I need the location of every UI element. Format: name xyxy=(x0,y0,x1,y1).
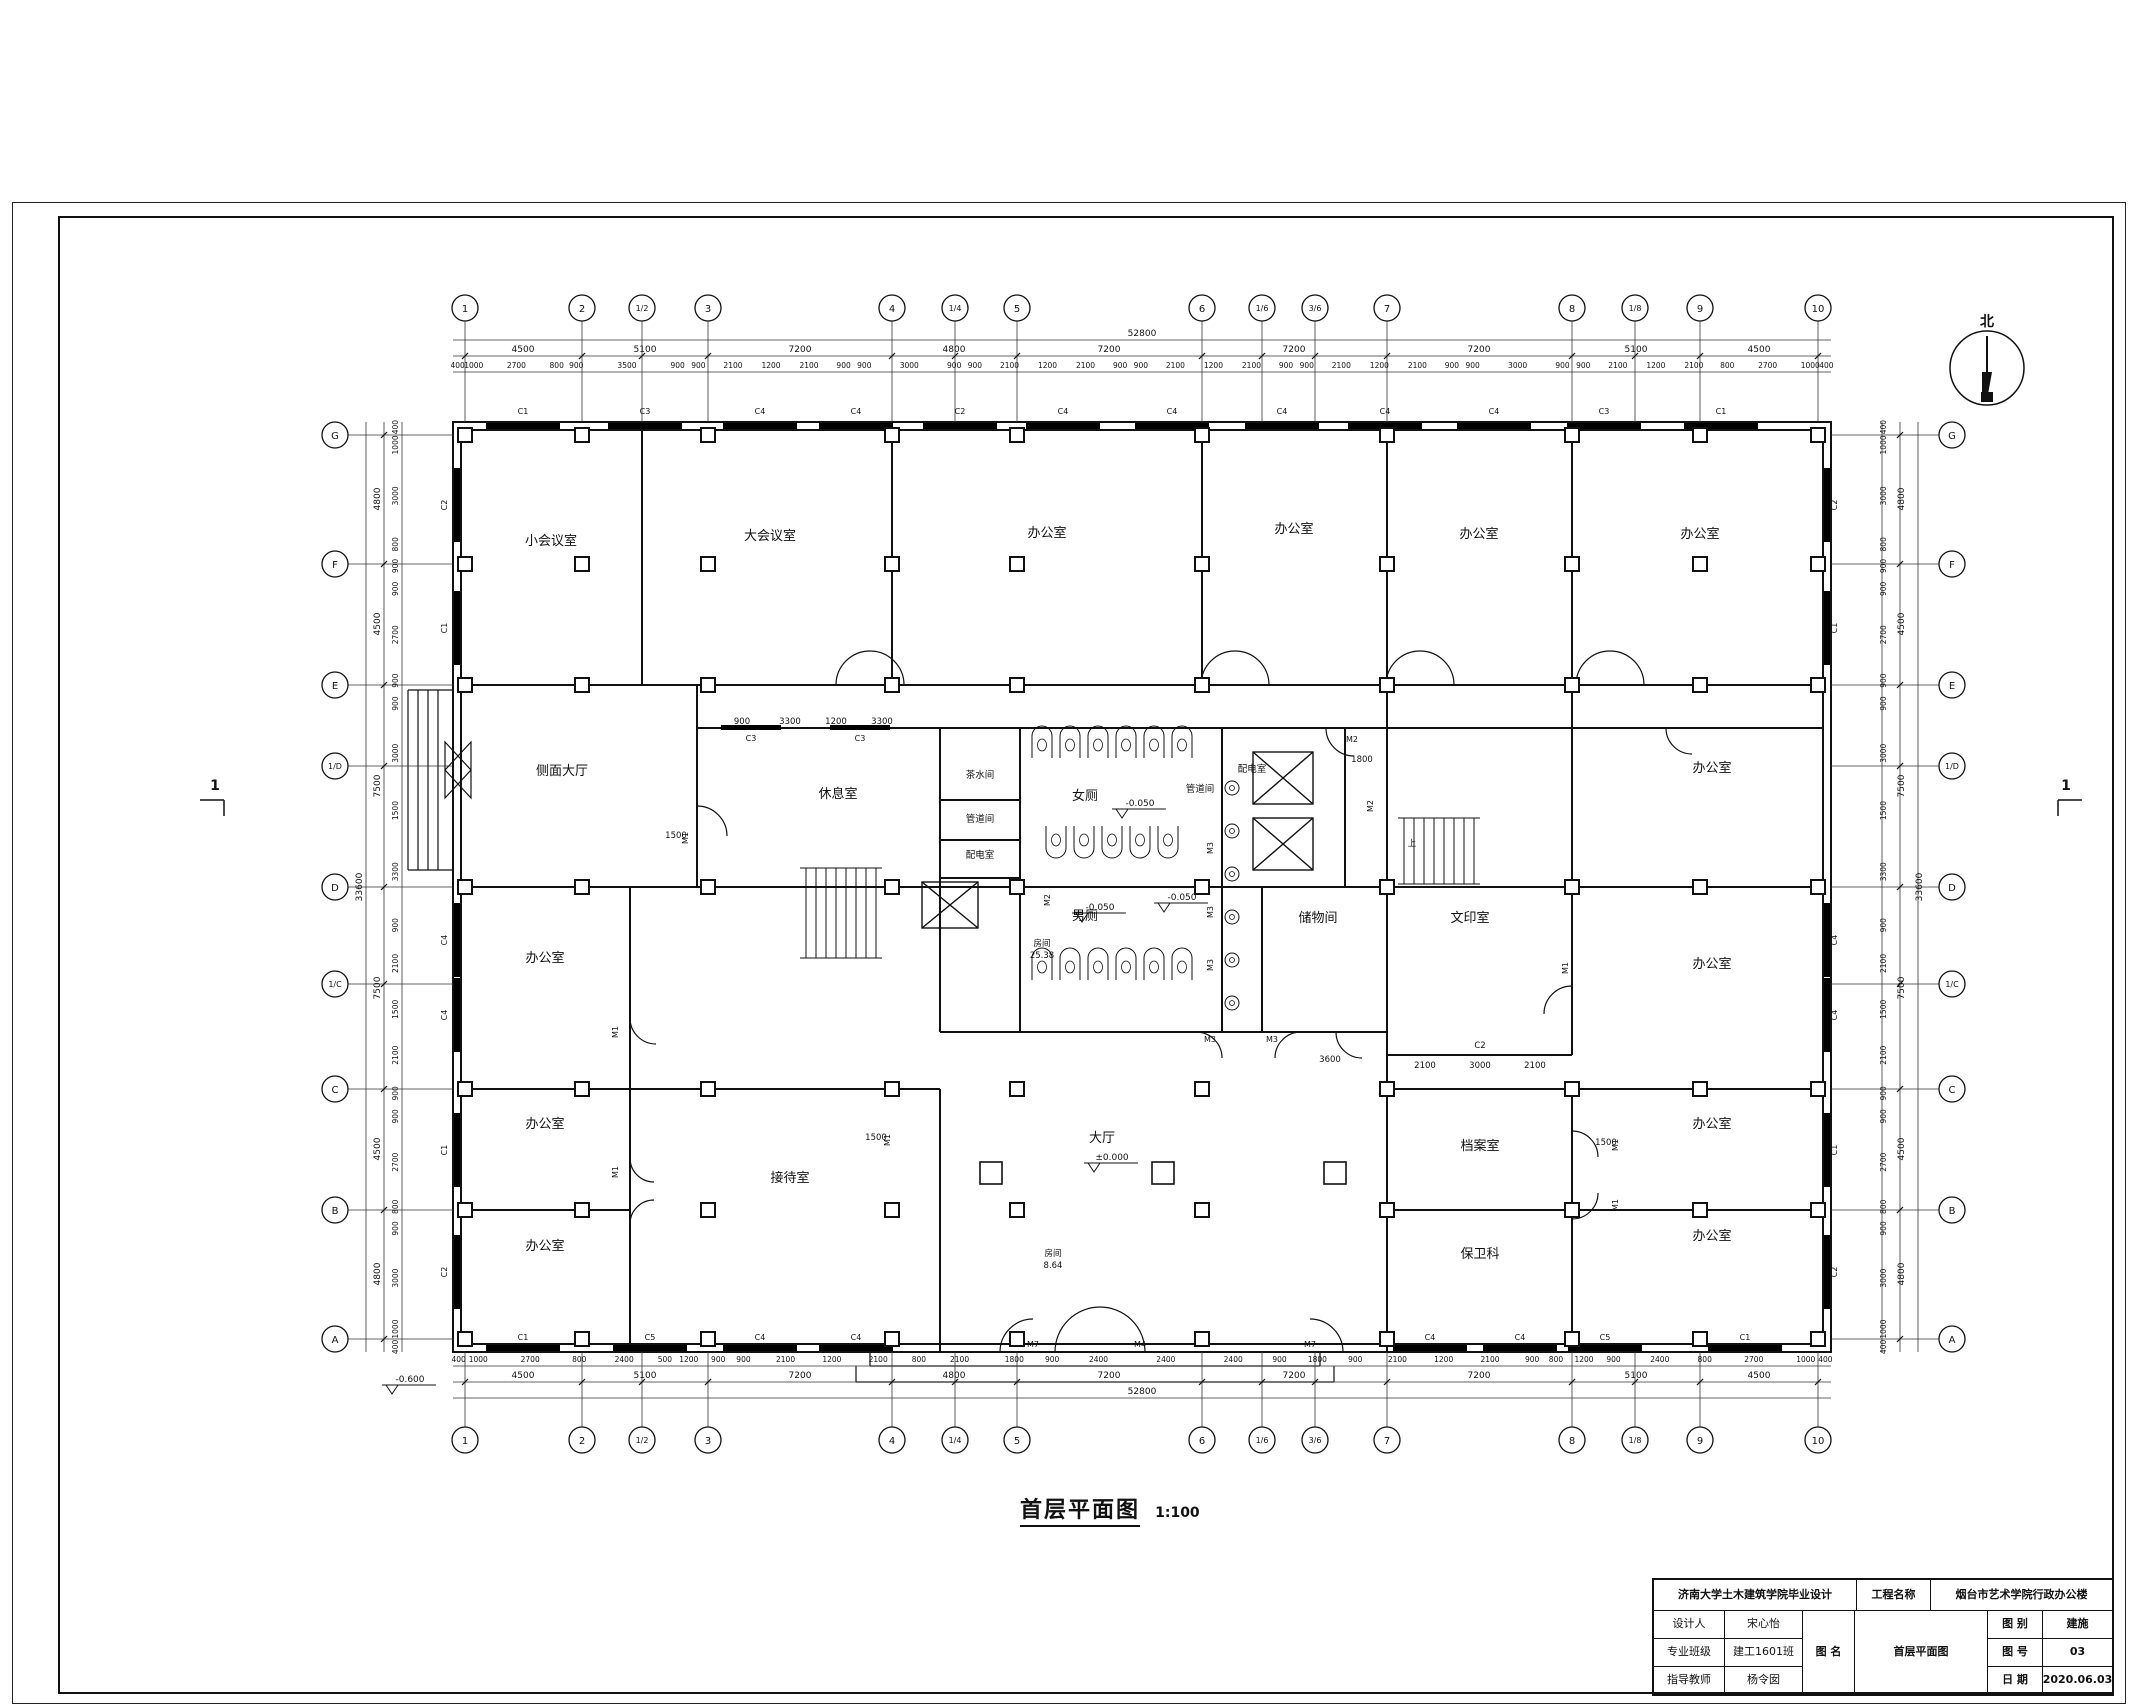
room-label: 配电室 xyxy=(966,849,995,861)
axis-label: 1/4 xyxy=(949,304,962,313)
date-value: 2020.06.03 xyxy=(2042,1666,2112,1694)
dim-text: 400 xyxy=(451,1355,466,1364)
column xyxy=(575,1082,589,1096)
dim-text: 400 xyxy=(1819,361,1834,370)
axis-label: F xyxy=(1949,560,1955,571)
sink-icon xyxy=(1225,781,1239,795)
column xyxy=(1380,428,1394,442)
toilet-stall-icon xyxy=(1088,726,1108,758)
sink-icon xyxy=(1225,867,1239,881)
toilet-stall-icon xyxy=(1074,826,1094,858)
elevation-label: -0.600 xyxy=(395,1375,424,1385)
opening-code: C4 xyxy=(440,935,449,946)
opening-code: M3 xyxy=(1206,842,1215,854)
axis-label: 7 xyxy=(1384,304,1390,315)
room-label: 管道间 xyxy=(1186,783,1215,795)
dim-text: 33600 xyxy=(355,872,365,901)
hall-column xyxy=(1152,1162,1174,1184)
toilet-stall-icon xyxy=(1130,826,1150,858)
dim-text: 3000 xyxy=(1879,1268,1888,1287)
column xyxy=(1565,1332,1579,1346)
axis-label: 1/8 xyxy=(1629,1436,1642,1445)
drawing-scale: 1:100 xyxy=(1155,1505,1200,1521)
floor-plan-svg: 11221/21/233441/41/455661/61/63/63/67788… xyxy=(0,0,2133,1706)
axis-label: 3/6 xyxy=(1309,304,1322,313)
dim-text: 1200 xyxy=(761,361,780,370)
column xyxy=(885,557,899,571)
room-label: 茶水间 xyxy=(966,769,995,781)
dim-text: 2700 xyxy=(391,625,400,644)
opening-code: C5 xyxy=(1600,1333,1611,1342)
dim-text: 4800 xyxy=(1897,487,1907,510)
annotation: 3300 xyxy=(779,717,801,727)
opening-code: C5 xyxy=(645,1333,656,1342)
dwgname-label: 图 名 xyxy=(1802,1610,1854,1694)
column xyxy=(1010,678,1024,692)
toilet-stall-icon xyxy=(1060,726,1080,758)
toilet-stall-icon xyxy=(1116,726,1136,758)
dim-text: 900 xyxy=(671,361,686,370)
dim-text: 3000 xyxy=(391,1268,400,1287)
axis-label: 1/4 xyxy=(949,1436,962,1445)
opening-code: C1 xyxy=(1830,623,1839,634)
column xyxy=(1693,678,1707,692)
axis-label: F xyxy=(332,560,338,571)
dim-text: 4800 xyxy=(1897,1262,1907,1285)
column xyxy=(885,1203,899,1217)
opening-code: C1 xyxy=(518,1333,529,1342)
column xyxy=(1811,557,1825,571)
dim-text: 4500 xyxy=(1748,345,1771,355)
axis-label: C xyxy=(1949,1085,1956,1096)
room-label: 储物间 xyxy=(1298,911,1337,926)
dim-text: 4500 xyxy=(512,1371,535,1381)
dim-text: 52800 xyxy=(1128,329,1157,339)
dim-text: 1500 xyxy=(1879,801,1888,820)
dwgname-value: 首层平面图 xyxy=(1854,1610,1987,1694)
opening-code: M2 xyxy=(1043,894,1052,906)
annotation: 1500 xyxy=(1595,1138,1617,1148)
elevation-marker-icon xyxy=(1116,809,1128,818)
annotation: 房间 xyxy=(1044,1248,1061,1259)
column xyxy=(1693,1203,1707,1217)
dim-text: 800 xyxy=(1549,1355,1564,1364)
elevation-label: -0.050 xyxy=(1125,799,1154,809)
annotation: 25.38 xyxy=(1030,951,1054,961)
dim-text: 900 xyxy=(1300,361,1315,370)
axis-label: 1/8 xyxy=(1629,304,1642,313)
annotation: 3000 xyxy=(1469,1061,1491,1071)
room-label: 配电室 xyxy=(1238,763,1267,775)
column xyxy=(458,1082,472,1096)
title-block: 济南大学土木建筑学院毕业设计 工程名称 烟台市艺术学院行政办公楼 设计人 宋心怡… xyxy=(1652,1578,2114,1696)
room-label: 文印室 xyxy=(1450,910,1489,926)
room-label: 办公室 xyxy=(1692,760,1731,776)
dim-text: 4800 xyxy=(373,487,383,510)
class-value: 建工1601班 xyxy=(1724,1638,1802,1666)
dim-text: 900 xyxy=(1348,1355,1363,1364)
column xyxy=(1195,428,1209,442)
column xyxy=(701,1082,715,1096)
dim-text: 2400 xyxy=(1224,1355,1243,1364)
dim-text: 800 xyxy=(1698,1355,1713,1364)
opening-code: M4 xyxy=(1134,1340,1146,1349)
column xyxy=(1565,880,1579,894)
room-label: 办公室 xyxy=(1680,526,1719,542)
dim-text: 400 xyxy=(1879,1340,1888,1355)
column xyxy=(1010,428,1024,442)
walls-group xyxy=(453,422,1831,1352)
column xyxy=(575,428,589,442)
axis-label: 9 xyxy=(1697,304,1703,315)
advisor-label: 指导教师 xyxy=(1654,1666,1724,1694)
opening-code: C1 xyxy=(440,623,449,634)
annotation: 900 xyxy=(734,717,750,727)
designer-label: 设计人 xyxy=(1654,1610,1724,1638)
dim-text: 900 xyxy=(391,1109,400,1124)
dim-text: 900 xyxy=(1576,361,1591,370)
dim-text: 7200 xyxy=(1468,345,1491,355)
opening-code: C4 xyxy=(755,407,766,416)
dim-text: 2100 xyxy=(1000,361,1019,370)
elevation-label: ±0.000 xyxy=(1095,1153,1129,1163)
room-label: 办公室 xyxy=(525,1238,564,1254)
dim-text: 1800 xyxy=(1005,1355,1024,1364)
opening-code: C1 xyxy=(1830,1145,1839,1156)
dim-text: 900 xyxy=(1879,673,1888,688)
dim-text: 7500 xyxy=(373,976,383,999)
annotation: 1800 xyxy=(1351,755,1373,765)
dim-text: 2100 xyxy=(1879,954,1888,973)
room-label: 办公室 xyxy=(525,950,564,966)
dim-text: 7500 xyxy=(373,774,383,797)
dim-text: 1200 xyxy=(1204,361,1223,370)
room-label: 档案室 xyxy=(1460,1138,1499,1154)
axis-label: 8 xyxy=(1569,1436,1575,1447)
column xyxy=(1010,1203,1024,1217)
dim-text: 400 xyxy=(391,420,400,435)
opening-code: C4 xyxy=(1058,407,1069,416)
dim-text: 1200 xyxy=(1646,361,1665,370)
axis-label: 1/C xyxy=(328,980,342,989)
dim-text: 900 xyxy=(1879,559,1888,574)
column xyxy=(1195,1203,1209,1217)
annotation: 1500 xyxy=(865,1133,887,1143)
axis-label: D xyxy=(1948,883,1956,894)
dim-text: 4500 xyxy=(1748,1371,1771,1381)
doors-group xyxy=(445,651,1692,1352)
elevation-marker-icon xyxy=(1088,1163,1100,1172)
number-label: 图 号 xyxy=(1987,1638,2042,1666)
dim-text: 4800 xyxy=(943,345,966,355)
dim-text: 900 xyxy=(1272,1355,1287,1364)
marker-label: 北 xyxy=(1980,314,1994,330)
axis-label: 4 xyxy=(889,304,895,315)
dim-text: 1200 xyxy=(1574,1355,1593,1364)
opening-code: C1 xyxy=(440,1145,449,1156)
dim-text: 2100 xyxy=(1684,361,1703,370)
dim-text: 2100 xyxy=(1879,1045,1888,1064)
column xyxy=(1565,678,1579,692)
dim-text: 1000 xyxy=(1801,361,1820,370)
column xyxy=(701,428,715,442)
opening-code: C4 xyxy=(851,407,862,416)
axis-label: 10 xyxy=(1812,304,1825,315)
axis-label: 3/6 xyxy=(1309,1436,1322,1445)
opening-code: C4 xyxy=(1830,935,1839,946)
dim-text: 500 xyxy=(658,1355,673,1364)
column xyxy=(885,678,899,692)
dim-text: 2100 xyxy=(1388,1355,1407,1364)
dim-text: 900 xyxy=(1045,1355,1060,1364)
column xyxy=(701,557,715,571)
opening-code: C1 xyxy=(518,407,529,416)
opening-code: M3 xyxy=(1266,1035,1278,1044)
column xyxy=(885,428,899,442)
dim-text: 400 xyxy=(1818,1355,1833,1364)
revolving-door-icon xyxy=(445,742,471,798)
column xyxy=(1811,1082,1825,1096)
number-value: 03 xyxy=(2042,1638,2112,1666)
dim-text: 900 xyxy=(391,1086,400,1101)
axis-label: 1 xyxy=(462,1436,468,1447)
room-label: 办公室 xyxy=(1692,1116,1731,1132)
axis-label: 8 xyxy=(1569,304,1575,315)
axis-label: 2 xyxy=(579,1436,585,1447)
dim-text: 4500 xyxy=(373,612,383,635)
opening-code: M7 xyxy=(1027,1340,1039,1349)
column xyxy=(1380,678,1394,692)
column xyxy=(1380,1082,1394,1096)
toilet-stall-icon xyxy=(1144,726,1164,758)
dim-text: 1200 xyxy=(1038,361,1057,370)
annotation: 1200 xyxy=(825,717,847,727)
column xyxy=(1380,557,1394,571)
axis-label: C xyxy=(332,1085,339,1096)
opening-code: M1 xyxy=(611,1026,620,1038)
column xyxy=(885,1082,899,1096)
title-block-project-label: 工程名称 xyxy=(1856,1580,1930,1610)
sink-icon xyxy=(1225,910,1239,924)
axis-label: 1 xyxy=(462,304,468,315)
dim-text: 400 xyxy=(450,361,465,370)
toilet-stall-icon xyxy=(1088,948,1108,980)
dim-text: 2700 xyxy=(1879,625,1888,644)
column xyxy=(1565,557,1579,571)
opening-code: C4 xyxy=(851,1333,862,1342)
opening-code: C2 xyxy=(440,500,449,511)
opening-code: C4 xyxy=(1277,407,1288,416)
dim-text: 400 xyxy=(391,1340,400,1355)
dim-text: 2100 xyxy=(1076,361,1095,370)
dim-text: 1000 xyxy=(391,435,400,454)
dim-text: 7200 xyxy=(1283,1371,1306,1381)
annotation: 1500 xyxy=(665,831,687,841)
dim-text: 7200 xyxy=(789,345,812,355)
drawing-caption: 首层平面图 1:100 xyxy=(1020,1492,1200,1524)
dim-text: 900 xyxy=(1879,1086,1888,1101)
column xyxy=(1195,1332,1209,1346)
opening-code: M1 xyxy=(1561,962,1570,974)
axis-label: 6 xyxy=(1199,304,1205,315)
dim-text: 900 xyxy=(1445,361,1460,370)
drawing-sheet: 11221/21/233441/41/455661/61/63/63/67788… xyxy=(0,0,2133,1706)
dim-text: 5100 xyxy=(1625,345,1648,355)
dim-text: 800 xyxy=(1879,1199,1888,1214)
elevation-label: -0.050 xyxy=(1085,903,1114,913)
dim-text: 2700 xyxy=(1744,1355,1763,1364)
dim-text: 3000 xyxy=(391,486,400,505)
dim-text: 3000 xyxy=(391,743,400,762)
dim-text: 900 xyxy=(391,559,400,574)
annotation: 2100 xyxy=(1524,1061,1546,1071)
column xyxy=(458,678,472,692)
opening-code: C4 xyxy=(1515,1333,1526,1342)
dim-text: 900 xyxy=(1113,361,1128,370)
dim-text: 900 xyxy=(391,696,400,711)
column xyxy=(575,678,589,692)
axis-label: E xyxy=(332,681,338,692)
class-label: 专业班级 xyxy=(1654,1638,1724,1666)
column xyxy=(885,880,899,894)
dim-text: 2700 xyxy=(391,1152,400,1171)
dim-text: 2100 xyxy=(869,1355,888,1364)
opening-code: C4 xyxy=(1380,407,1391,416)
category-value: 建施 xyxy=(2042,1610,2112,1638)
dim-text: 52800 xyxy=(1128,1387,1157,1397)
axis-label: 1/D xyxy=(328,762,342,771)
axis-label: 1/6 xyxy=(1256,304,1269,313)
advisor-value: 杨令囡 xyxy=(1724,1666,1802,1694)
room-label: 办公室 xyxy=(1692,1228,1731,1244)
opening-code: C4 xyxy=(755,1333,766,1342)
dim-text: 3000 xyxy=(1879,743,1888,762)
opening-code: C3 xyxy=(855,734,866,743)
opening-code: C3 xyxy=(1599,407,1610,416)
axis-label: 9 xyxy=(1697,1436,1703,1447)
dim-text: 33600 xyxy=(1915,872,1925,901)
toilet-stall-icon xyxy=(1116,948,1136,980)
axis-label: D xyxy=(331,883,339,894)
axis-label: B xyxy=(1949,1206,1956,1217)
dim-text: 7200 xyxy=(789,1371,812,1381)
north-arrow-icon xyxy=(1950,331,2024,405)
dim-text: 2700 xyxy=(507,361,526,370)
dim-text: 5100 xyxy=(1625,1371,1648,1381)
dim-text: 2400 xyxy=(1650,1355,1669,1364)
dim-text: 1200 xyxy=(1434,1355,1453,1364)
opening-code: M1 xyxy=(611,1166,620,1178)
column xyxy=(1811,1332,1825,1346)
room-label: 接待室 xyxy=(770,1170,809,1186)
toilet-stall-icon xyxy=(1102,826,1122,858)
axis-label: 3 xyxy=(705,1436,711,1447)
column xyxy=(1693,1082,1707,1096)
column xyxy=(575,557,589,571)
room-label: 办公室 xyxy=(1274,521,1313,537)
column xyxy=(1195,678,1209,692)
dim-text: 900 xyxy=(736,1355,751,1364)
dim-text: 4500 xyxy=(1897,612,1907,635)
opening-code: C2 xyxy=(1830,500,1839,511)
axis-label: E xyxy=(1949,681,1955,692)
opening-code: C4 xyxy=(1830,1010,1839,1021)
dim-text: 4500 xyxy=(373,1137,383,1160)
annotation: 2100 xyxy=(1414,1061,1436,1071)
room-label: 大会议室 xyxy=(744,528,796,544)
opening-code: C2 xyxy=(440,1267,449,1278)
column xyxy=(1010,1332,1024,1346)
opening-code: C4 xyxy=(440,1010,449,1021)
annotation: 3600 xyxy=(1319,1055,1341,1065)
dim-text: 900 xyxy=(968,361,983,370)
opening-code: M3 xyxy=(1204,1035,1216,1044)
column xyxy=(1380,1203,1394,1217)
dim-text: 4500 xyxy=(1897,1137,1907,1160)
column xyxy=(701,678,715,692)
dim-text: 3000 xyxy=(900,361,919,370)
column xyxy=(1010,1082,1024,1096)
toilet-stall-icon xyxy=(1172,726,1192,758)
opening-code: C4 xyxy=(1489,407,1500,416)
column xyxy=(701,1203,715,1217)
dim-text: 2100 xyxy=(1332,361,1351,370)
dim-text: 900 xyxy=(1879,1221,1888,1236)
dim-text: 900 xyxy=(391,1221,400,1236)
dim-text: 3300 xyxy=(391,862,400,881)
dim-text: 800 xyxy=(391,1199,400,1214)
dim-text: 900 xyxy=(836,361,851,370)
room-label: 办公室 xyxy=(525,1116,564,1132)
dim-text: 800 xyxy=(1879,537,1888,552)
room-label: 办公室 xyxy=(1459,526,1498,542)
dim-text: 900 xyxy=(1525,1355,1540,1364)
dim-text: 2100 xyxy=(723,361,742,370)
dim-text: 1000 xyxy=(464,361,483,370)
annotation: 8.64 xyxy=(1044,1261,1063,1271)
opening-code: M2 xyxy=(1366,800,1375,812)
column xyxy=(1380,880,1394,894)
dim-text: 7500 xyxy=(1897,774,1907,797)
column xyxy=(458,428,472,442)
axis-label: 1/2 xyxy=(636,304,649,313)
dim-text: 1200 xyxy=(822,1355,841,1364)
axis-label: 2 xyxy=(579,304,585,315)
dim-text: 900 xyxy=(691,361,706,370)
dim-text: 7500 xyxy=(1897,976,1907,999)
column xyxy=(458,880,472,894)
dim-text: 900 xyxy=(1879,582,1888,597)
opening-code: M2 xyxy=(1346,735,1358,744)
dim-text: 900 xyxy=(947,361,962,370)
axis-label: 7 xyxy=(1384,1436,1390,1447)
opening-code: C3 xyxy=(640,407,651,416)
opening-code: M1 xyxy=(1611,1199,1620,1211)
dim-text: 5100 xyxy=(634,1371,657,1381)
dim-text: 900 xyxy=(569,361,584,370)
opening-code: C1 xyxy=(1716,407,1727,416)
column xyxy=(1693,557,1707,571)
column xyxy=(1811,1203,1825,1217)
column xyxy=(1811,428,1825,442)
dim-text: 2700 xyxy=(1879,1152,1888,1171)
column xyxy=(1811,678,1825,692)
axis-label: 4 xyxy=(889,1436,895,1447)
toilet-stall-icon xyxy=(1060,948,1080,980)
annotation: 房间 xyxy=(1033,938,1050,949)
column xyxy=(1693,880,1707,894)
dim-text: 1800 xyxy=(1308,1355,1327,1364)
